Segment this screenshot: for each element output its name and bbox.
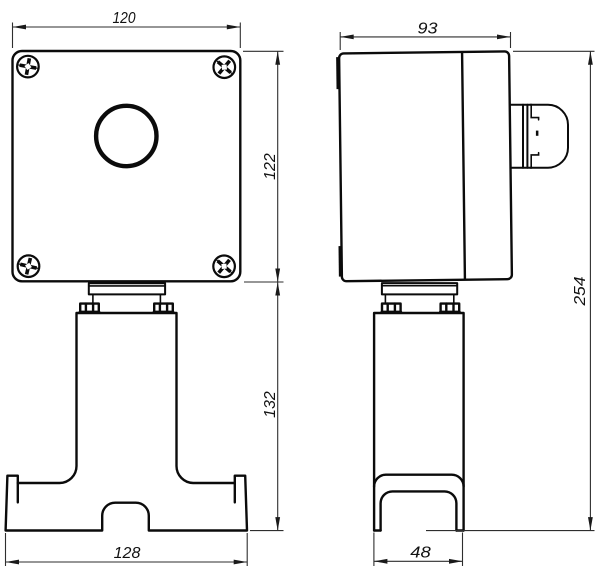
svg-text:93: 93 [418,21,438,38]
svg-text:120: 120 [113,10,136,27]
svg-text:254: 254 [572,276,589,306]
svg-text:128: 128 [114,545,141,562]
svg-text:48: 48 [410,545,431,562]
svg-text:122: 122 [262,153,279,180]
svg-text:132: 132 [262,391,279,418]
